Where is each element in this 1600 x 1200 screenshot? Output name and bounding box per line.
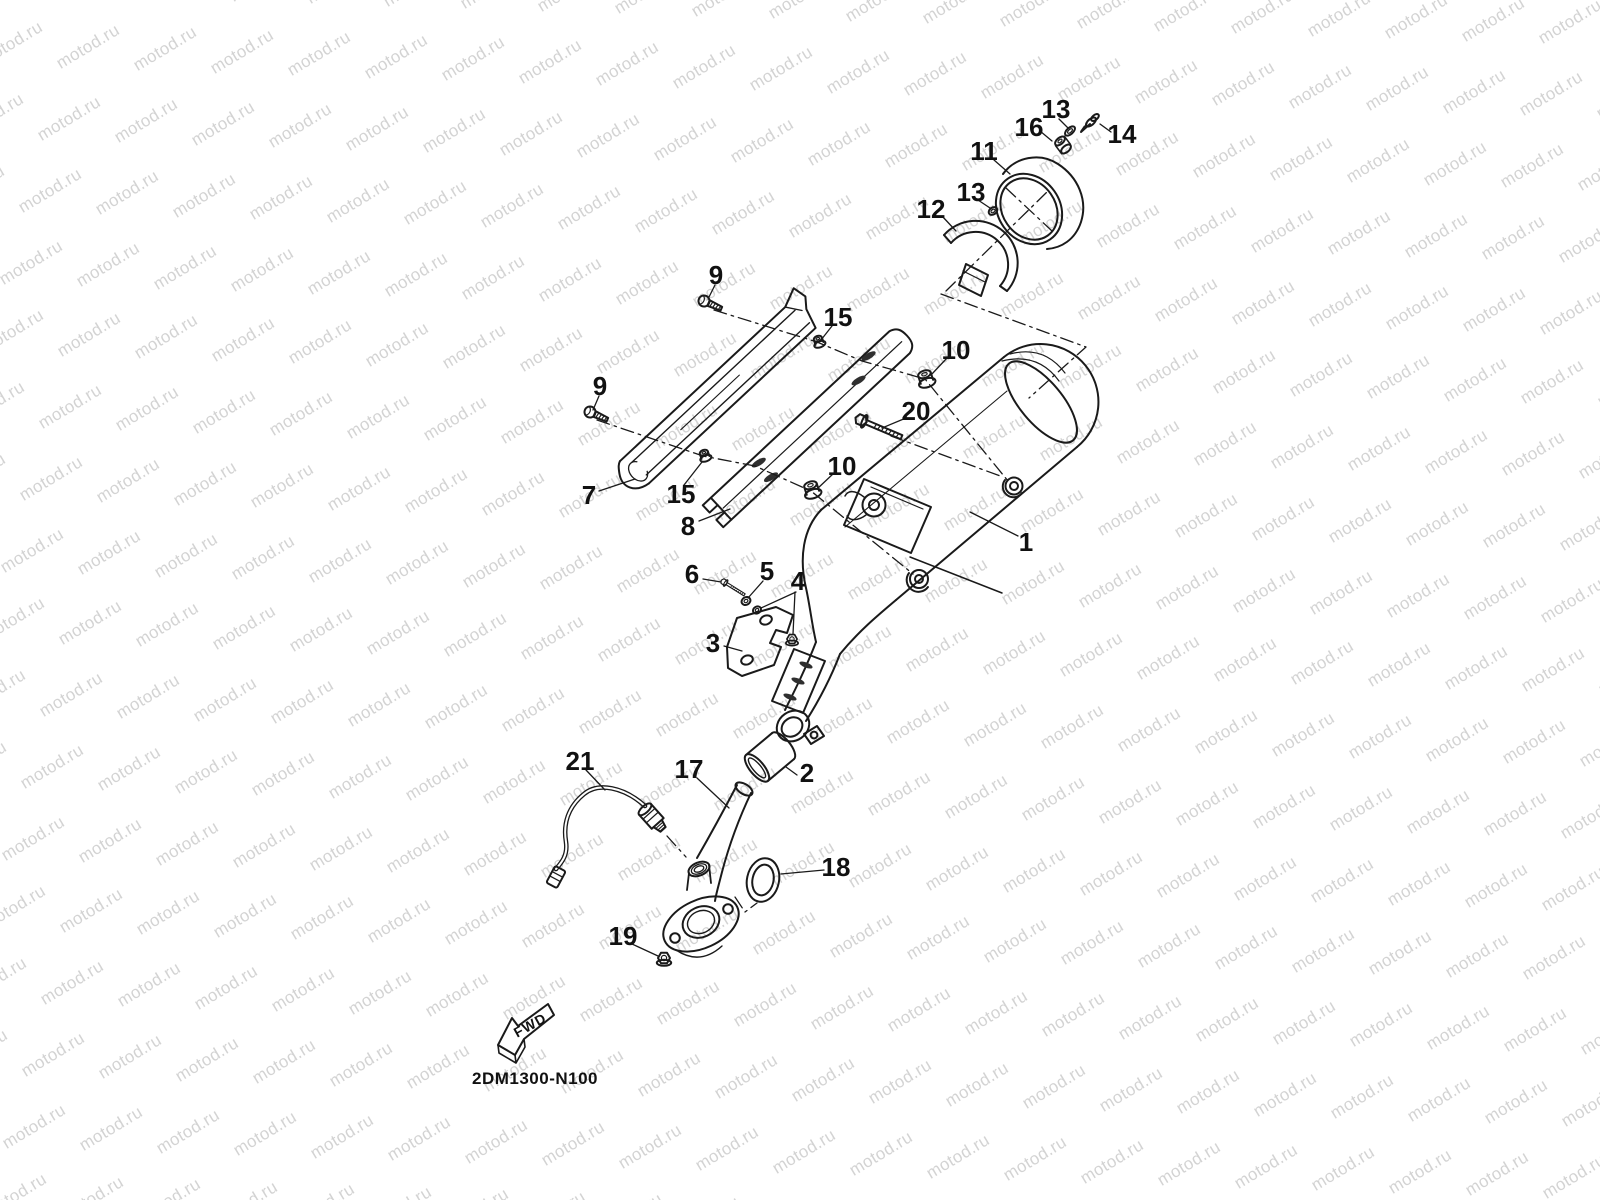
part-19-nut (657, 953, 671, 966)
part-3-stay (727, 607, 793, 676)
leader-line (699, 509, 730, 521)
part-16-collar-small (1054, 135, 1073, 155)
part-number-label: 15 (824, 302, 853, 332)
part-4-nut (786, 635, 798, 646)
part-number-label: 5 (760, 556, 774, 586)
part-number-label: 1 (1019, 527, 1033, 557)
part-number-label: 12 (917, 194, 946, 224)
part-9-screw-left (583, 405, 610, 425)
part-number-label: 6 (685, 559, 699, 589)
part-number-label: 10 (942, 335, 971, 365)
assembly-axis-line (667, 836, 686, 857)
part-1-muffler-body (771, 344, 1099, 748)
part-6-bolt (719, 577, 746, 598)
part-number-label: 8 (681, 511, 695, 541)
assembly-axis-lines (597, 188, 1086, 912)
diagram-code: 2DM1300-N100 (472, 1069, 598, 1088)
part-number-label: 13 (957, 177, 986, 207)
part-number-label: 13 (1042, 94, 1071, 124)
exploded-parts-diagram: FWD 123456789910101112131314151516171819… (0, 0, 1600, 1200)
part-number-labels: 1234567899101011121313141515161718192021 (566, 94, 1137, 951)
part-number-label: 16 (1015, 112, 1044, 142)
leader-line (703, 579, 721, 582)
leader-line (793, 592, 795, 634)
leader-line (786, 767, 797, 775)
part-7-protector-cover (605, 286, 825, 496)
part-11-end-cap (982, 157, 1083, 257)
fwd-label: FWD (511, 1010, 549, 1041)
part-number-label: 3 (706, 628, 720, 658)
part-9-screw-top (697, 294, 724, 314)
parts-diagram-page: motod.rumotod.rumotod.rumotod.rumotod.ru… (0, 0, 1600, 1200)
part-number-label: 11 (970, 136, 998, 166)
leader-line (781, 870, 824, 874)
part-number-label: 17 (675, 754, 704, 784)
part-number-label: 7 (582, 480, 596, 510)
leader-line (599, 479, 635, 491)
part-number-label: 20 (902, 396, 931, 426)
part-13-washer-top (1063, 125, 1076, 138)
part-number-label: 15 (667, 479, 696, 509)
part-5-washer (740, 595, 752, 606)
part-number-label: 2 (800, 758, 814, 788)
fwd-arrow: FWD (498, 1004, 554, 1063)
part-18-gasket (743, 855, 783, 905)
part-number-label: 9 (593, 371, 607, 401)
assembly-axis-line (891, 436, 1003, 477)
part-17-exhaust-pipe (655, 780, 755, 963)
part-number-label: 4 (791, 566, 806, 596)
part-number-label: 19 (609, 921, 638, 951)
part-21-o2-sensor (546, 788, 669, 889)
part-15-grommet-bottom (697, 448, 712, 463)
part-number-label: 10 (828, 451, 857, 481)
part-number-label: 9 (709, 260, 723, 290)
part-14-screw (1081, 113, 1100, 132)
part-10-collar-top (915, 368, 936, 389)
part-number-label: 18 (822, 852, 851, 882)
part-number-label: 21 (566, 746, 595, 776)
part-number-label: 14 (1108, 119, 1137, 149)
